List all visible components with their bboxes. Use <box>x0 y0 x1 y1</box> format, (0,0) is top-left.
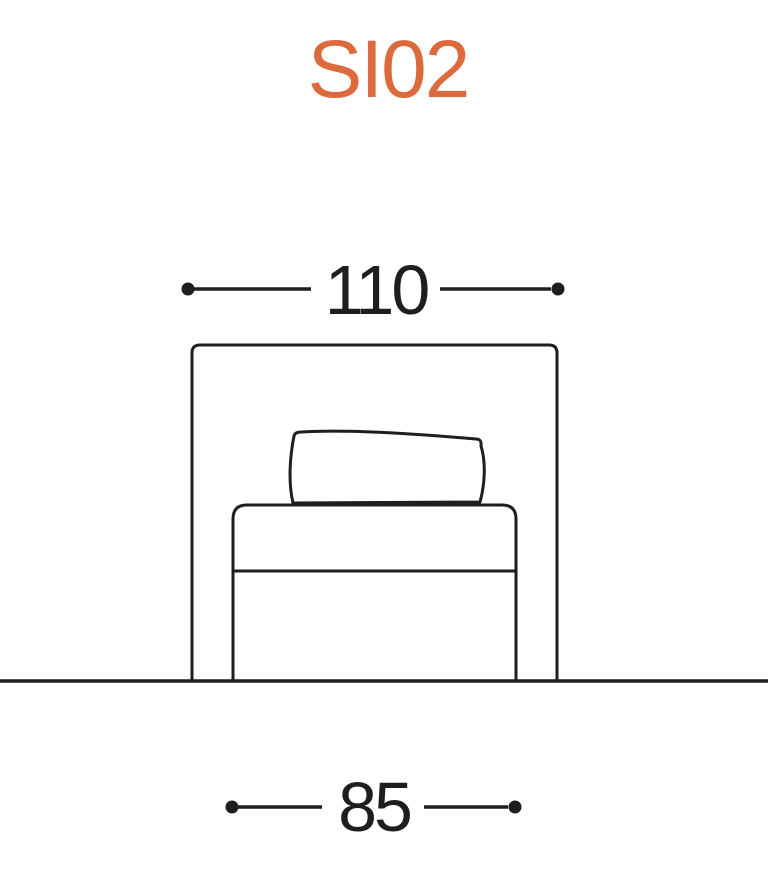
bottom-dimension-value: 85 <box>338 768 410 846</box>
bottom-dimension-callout: 85 <box>226 768 522 846</box>
dimension-endpoint-dot-right <box>552 283 565 296</box>
seat-outline <box>233 505 516 681</box>
dimension-endpoint-dot-left <box>226 801 239 814</box>
top-dimension-callout: 110 <box>182 251 565 329</box>
sofa-outline <box>192 345 557 681</box>
top-dimension-value: 110 <box>325 251 429 329</box>
furniture-dimension-drawing: SI02 110 <box>0 0 768 884</box>
dimension-endpoint-dot-right <box>509 801 522 814</box>
product-code-title: SI02 <box>308 24 469 115</box>
catalog-page: SI02 110 <box>0 0 768 884</box>
line-work: 110 85 <box>0 251 768 846</box>
pillow-outline <box>290 431 484 503</box>
dimension-endpoint-dot-left <box>182 283 195 296</box>
